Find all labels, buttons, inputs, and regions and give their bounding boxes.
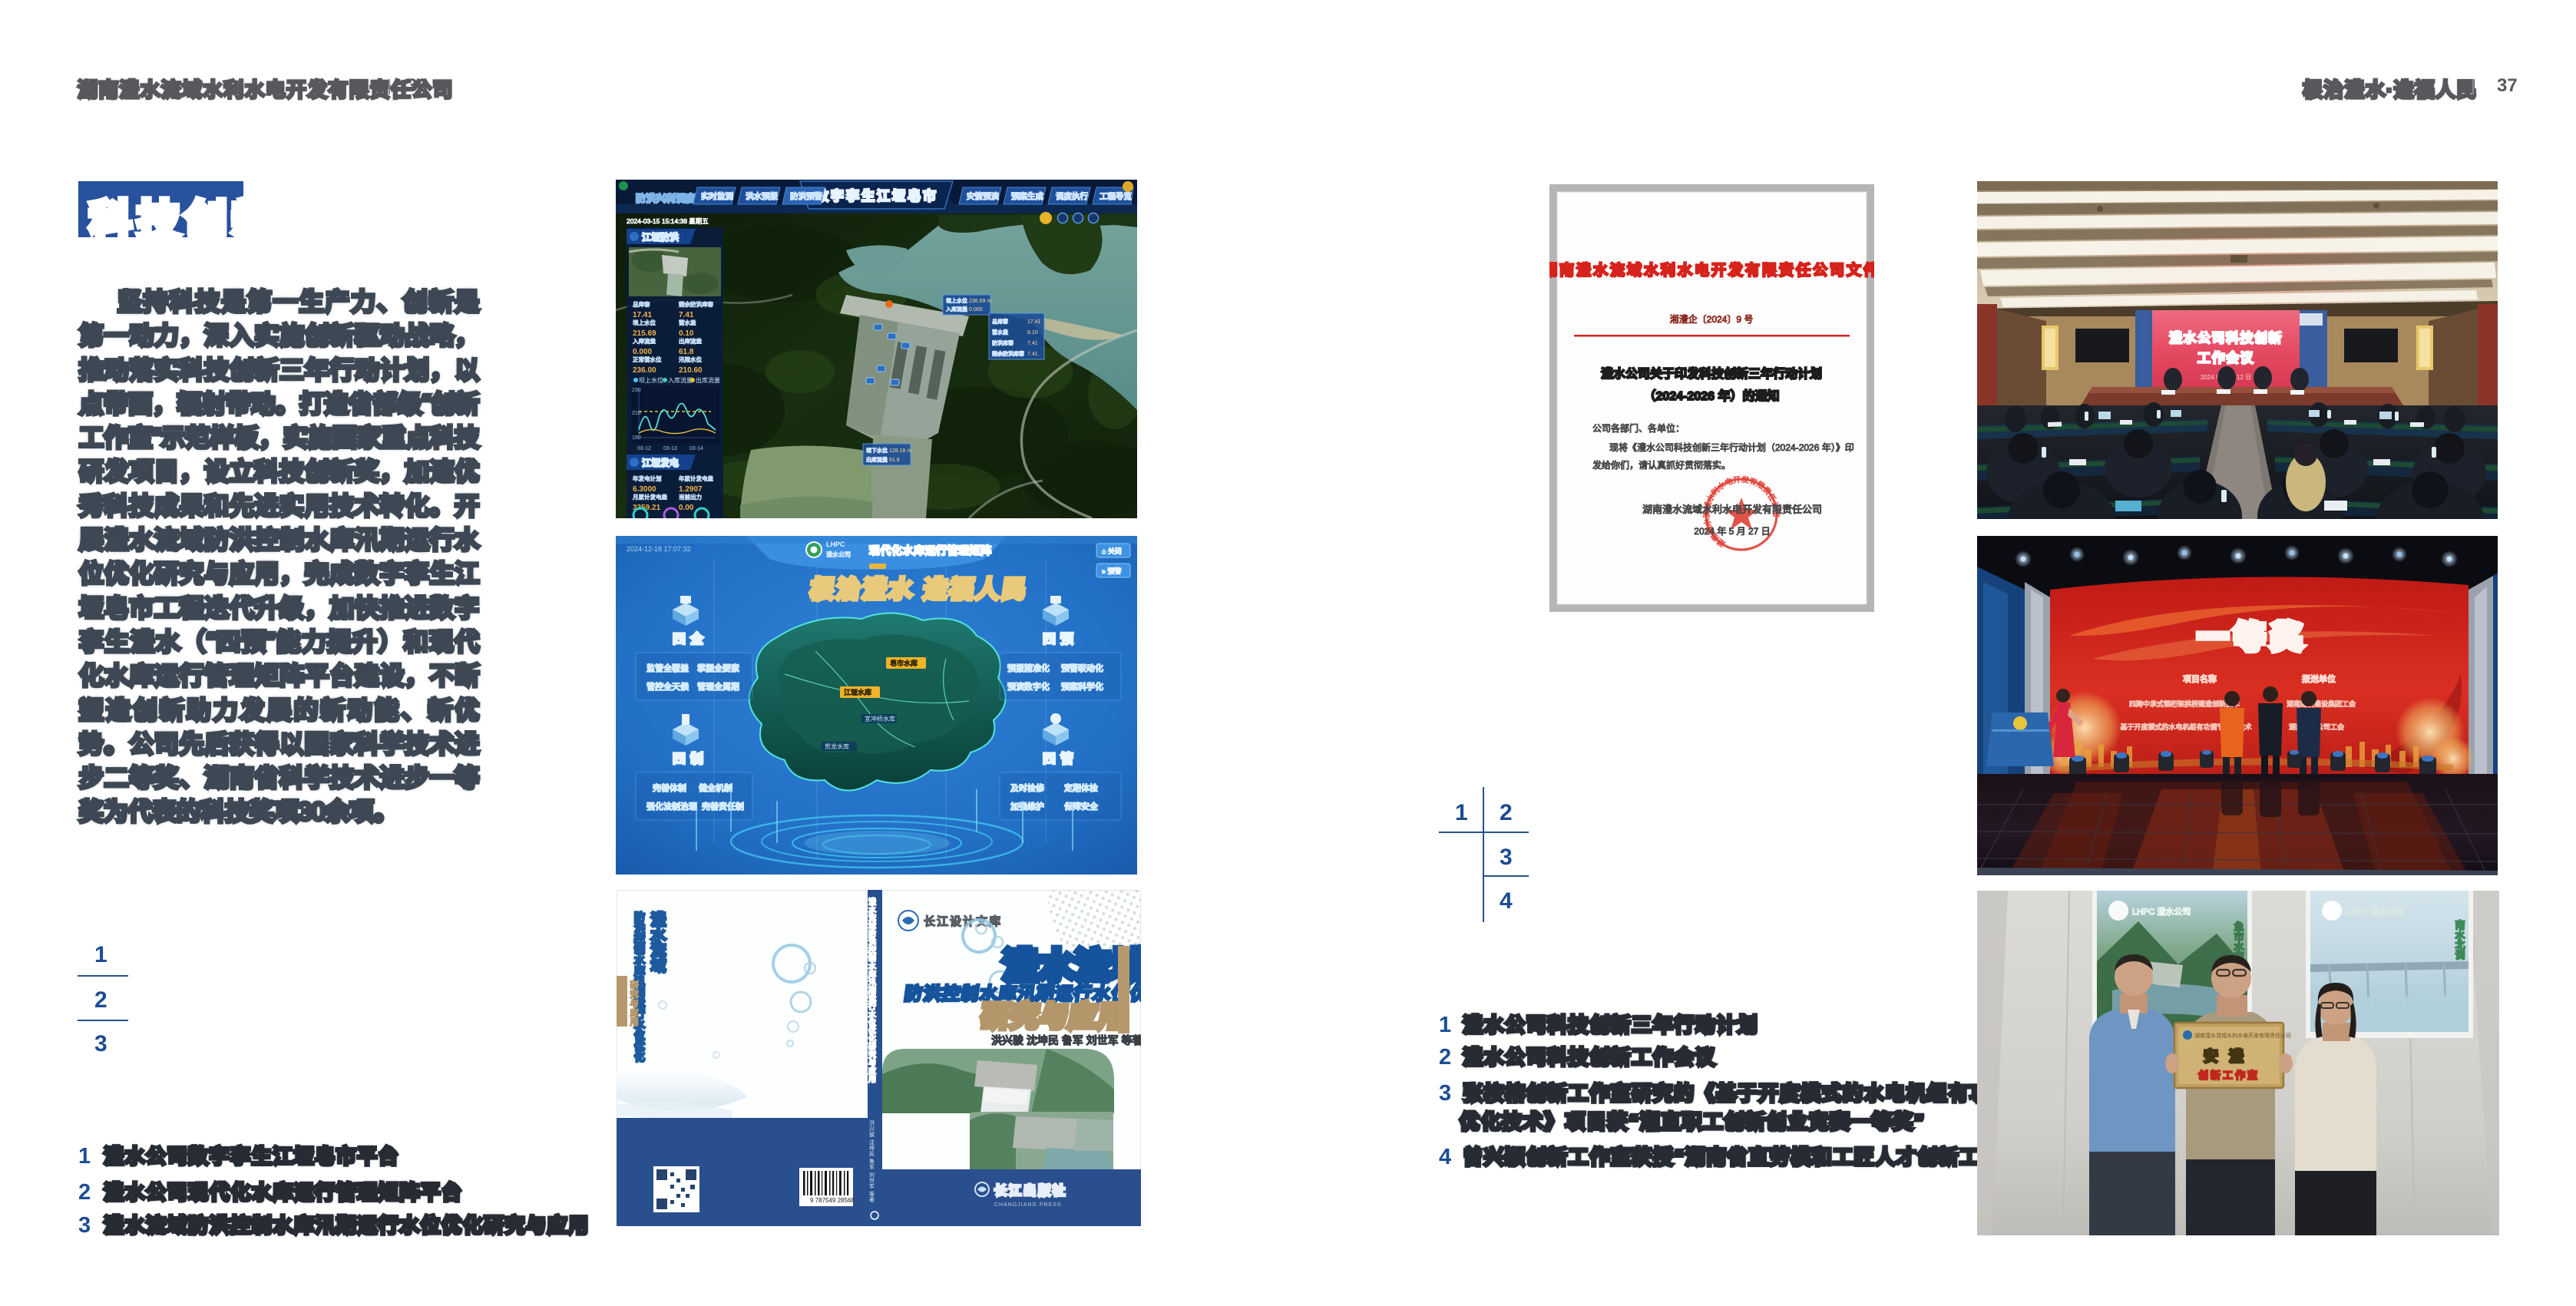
- svg-text:防洪兴利调度: 防洪兴利调度: [636, 193, 696, 204]
- svg-text:190: 190: [632, 435, 641, 441]
- svg-text:210: 210: [632, 411, 641, 416]
- svg-text:现代化水库运行管理矩阵: 现代化水库运行管理矩阵: [869, 544, 992, 557]
- svg-text:一等奖: 一等奖: [2198, 622, 2309, 654]
- svg-text:湖南澧水流域水利水电开发有限责任公司文件: 湖南澧水流域水利水电开发有限责任公司文件: [1549, 261, 1874, 279]
- svg-text:项目名称: 项目名称: [2183, 673, 2217, 684]
- svg-text:数字孪生江垭皂市: 数字孪生江垭皂市: [815, 188, 938, 203]
- svg-text:03-12: 03-12: [637, 446, 651, 451]
- svg-text:» 预警: » 预警: [1102, 567, 1122, 575]
- svg-text:剩余防洪库容: 剩余防洪库容: [992, 350, 1024, 357]
- svg-text:0.000: 0.000: [969, 307, 983, 312]
- svg-text:监管全覆盖: 监管全覆盖: [646, 663, 689, 673]
- svg-text:2024 年 5 月 27 日: 2024 年 5 月 27 日: [1694, 526, 1770, 537]
- svg-text:总库容: 总库容: [992, 318, 1008, 325]
- svg-text:现将《澧水公司科技创新三年行动计划（2024-2026 年）: 现将《澧水公司科技创新三年行动计划（2024-2026 年）》印: [1609, 441, 1854, 453]
- svg-text:⌂ 关闭: ⌂ 关闭: [1102, 547, 1122, 555]
- svg-text:四制: 四制: [673, 751, 708, 766]
- svg-text:江垭水库: 江垭水库: [844, 688, 871, 696]
- svg-text:正常蓄水位: 正常蓄水位: [633, 355, 662, 363]
- svg-text:江垭发电: 江垭发电: [642, 457, 679, 468]
- svg-text:236.69 m: 236.69 m: [969, 299, 991, 304]
- svg-text:7.41: 7.41: [1027, 341, 1038, 346]
- svg-text:CHANGJIANG PRESS: CHANGJIANG PRESS: [994, 1202, 1062, 1208]
- svg-text:工程导览: 工程导览: [1100, 191, 1132, 201]
- svg-text:灾情预演: 灾情预演: [967, 191, 999, 201]
- svg-text:预警联动化: 预警联动化: [1061, 663, 1103, 673]
- svg-text:掌握全要素: 掌握全要素: [697, 663, 739, 673]
- svg-text:剩余防洪库容: 剩余防洪库容: [679, 300, 713, 308]
- svg-text:健全机制: 健全机制: [699, 782, 732, 793]
- svg-text:9 787549 28568: 9 787549 28568: [810, 1197, 855, 1204]
- svg-text:四预: 四预: [1043, 632, 1078, 646]
- svg-text:（2024-2026 年）的通知: （2024-2026 年）的通知: [1644, 388, 1780, 403]
- svg-text:230: 230: [632, 388, 641, 393]
- svg-text:加强维护: 加强维护: [1010, 801, 1044, 812]
- svg-text:61.8: 61.8: [889, 458, 900, 463]
- svg-text:澧水流域: 澧水流域: [648, 911, 666, 973]
- svg-text:坝上水位: 坝上水位: [946, 297, 967, 304]
- svg-text:6.3000: 6.3000: [633, 485, 656, 494]
- svg-text:贺龙水库: 贺龙水库: [825, 742, 849, 750]
- svg-text:皂市水库: 皂市水库: [890, 659, 918, 667]
- svg-text:17.41: 17.41: [633, 311, 652, 319]
- svg-text:LHPC 澧水公司: LHPC 澧水公司: [2132, 906, 2191, 917]
- svg-text:洪兴骏 沈坤民 鲁军 刘世军 等著: 洪兴骏 沈坤民 鲁军 刘世军 等著: [869, 1119, 875, 1203]
- svg-text:安澧: 安澧: [2204, 1047, 2254, 1065]
- svg-text:2024-03-15 15:14:38 星期五: 2024-03-15 15:14:38 星期五: [627, 217, 709, 225]
- svg-text:强化法制治理: 强化法制治理: [646, 801, 697, 812]
- svg-text:发给你们，请认真抓好贯彻落实。: 发给你们，请认真抓好贯彻落实。: [1592, 459, 1731, 471]
- svg-text:湖南路桥建设集团工会: 湖南路桥建设集团工会: [2287, 699, 2356, 708]
- svg-text:研究与应用: 研究与应用: [629, 980, 639, 1027]
- svg-text:0.00: 0.00: [679, 504, 694, 512]
- svg-text:LHPC 澧水公司: LHPC 澧水公司: [2346, 906, 2404, 917]
- svg-text:出库流量: 出库流量: [696, 376, 720, 384]
- svg-text:7.41: 7.41: [1027, 352, 1038, 357]
- svg-text:南水北调: 南水北调: [2454, 919, 2465, 960]
- svg-text:03-13: 03-13: [663, 446, 677, 451]
- svg-text:236.00: 236.00: [633, 366, 656, 375]
- svg-text:澧水公司: 澧水公司: [826, 551, 851, 558]
- svg-text:实时监测: 实时监测: [701, 191, 733, 201]
- svg-text:0.000: 0.000: [633, 348, 652, 356]
- svg-text:8.10: 8.10: [1027, 330, 1038, 336]
- svg-text:坝上水位: 坝上水位: [639, 376, 663, 384]
- svg-text:保障安全: 保障安全: [1064, 801, 1098, 812]
- svg-text:定期体检: 定期体检: [1064, 782, 1098, 793]
- svg-text:防洪库容: 防洪库容: [992, 339, 1014, 346]
- svg-text:长江出版社: 长江出版社: [994, 1183, 1067, 1198]
- svg-text:四全: 四全: [673, 631, 708, 646]
- svg-text:蓄水量: 蓄水量: [992, 329, 1008, 336]
- svg-text:出库流量: 出库流量: [866, 456, 888, 463]
- svg-text:总库容: 总库容: [633, 300, 650, 308]
- svg-text:汛限水位: 汛限水位: [679, 355, 702, 363]
- svg-text:完善责任制: 完善责任制: [702, 801, 744, 812]
- svg-text:及时检修: 及时检修: [1010, 782, 1044, 793]
- svg-text:管理全周期: 管理全周期: [697, 681, 739, 692]
- svg-text:入库流量: 入库流量: [946, 306, 967, 312]
- svg-text:215.69: 215.69: [633, 329, 656, 338]
- svg-text:江垭防洪: 江垭防洪: [642, 231, 679, 243]
- svg-text:坝下水位: 坝下水位: [866, 447, 888, 454]
- svg-text:坝上水位: 坝上水位: [633, 319, 656, 326]
- svg-text:月累计发电量: 月累计发电量: [633, 493, 667, 501]
- svg-text:出库流量: 出库流量: [679, 337, 702, 345]
- svg-text:蓄水量: 蓄水量: [679, 319, 696, 326]
- svg-text:湘澧企〔2024〕9 号: 湘澧企〔2024〕9 号: [1670, 313, 1754, 325]
- svg-text:入库流量: 入库流量: [668, 376, 693, 384]
- svg-text:完善体制: 完善体制: [653, 782, 686, 793]
- svg-text:年发电计划: 年发电计划: [633, 474, 662, 482]
- svg-text:防洪预警: 防洪预警: [790, 191, 822, 201]
- svg-text:湖南澧水流域水利水电开发有限责任公司: 湖南澧水流域水利水电开发有限责任公司: [1642, 504, 1822, 515]
- svg-text:210.60: 210.60: [679, 366, 703, 375]
- svg-text:预案科学化: 预案科学化: [1061, 681, 1103, 692]
- svg-text:1.2907: 1.2907: [679, 485, 703, 494]
- svg-text:调度执行: 调度执行: [1056, 191, 1088, 201]
- svg-text:LHPC: LHPC: [826, 541, 845, 548]
- svg-text:预案生成: 预案生成: [1011, 191, 1043, 201]
- svg-text:洪水预报: 洪水预报: [746, 191, 778, 201]
- svg-text:澧水公司科技创新: 澧水公司科技创新: [2169, 330, 2283, 346]
- svg-text:7.41: 7.41: [679, 311, 694, 319]
- svg-text:入库流量: 入库流量: [633, 337, 656, 345]
- svg-text:洪兴骏 沈坤民 鲁军 刘世军 等著: 洪兴骏 沈坤民 鲁军 刘世军 等著: [991, 1034, 1141, 1046]
- svg-text:预演数字化: 预演数字化: [1007, 681, 1050, 692]
- svg-text:工作会议: 工作会议: [2197, 350, 2254, 365]
- svg-text:研究与应用: 研究与应用: [980, 1000, 1130, 1032]
- svg-text:公司各部门、各单位：: 公司各部门、各单位：: [1592, 422, 1685, 434]
- svg-text:128.18 m: 128.18 m: [889, 448, 911, 454]
- svg-text:湖南澧水流域水利水电开发有限责任公司: 湖南澧水流域水利水电开发有限责任公司: [2194, 1032, 2291, 1039]
- svg-text:预报精准化: 预报精准化: [1007, 663, 1050, 673]
- svg-text:17.41: 17.41: [1027, 319, 1041, 325]
- svg-text:四跨中承式钢桁架拱桥建造创新技术: 四跨中承式钢桁架拱桥建造创新技术: [2129, 699, 2240, 708]
- svg-text:03-14: 03-14: [689, 446, 703, 451]
- svg-text:报送单位: 报送单位: [2302, 673, 2336, 684]
- svg-text:当前出力: 当前出力: [679, 493, 702, 501]
- svg-text:四管: 四管: [1043, 751, 1078, 766]
- svg-text:宜冲桥水库: 宜冲桥水库: [865, 715, 895, 722]
- svg-text:澧水公司关于印发科技创新三年行动计划: 澧水公司关于印发科技创新三年行动计划: [1601, 366, 1822, 381]
- svg-text:2024-12-18 17:07:32: 2024-12-18 17:07:32: [627, 545, 691, 553]
- svg-text:年累计发电量: 年累计发电量: [679, 474, 713, 482]
- svg-text:根治澧水 造福人民: 根治澧水 造福人民: [809, 576, 1030, 603]
- svg-text:管控全天候: 管控全天候: [646, 681, 689, 692]
- svg-text:创新工作室: 创新工作室: [2197, 1070, 2260, 1081]
- svg-text:0.10: 0.10: [679, 329, 694, 338]
- svg-text:61.8: 61.8: [679, 348, 694, 356]
